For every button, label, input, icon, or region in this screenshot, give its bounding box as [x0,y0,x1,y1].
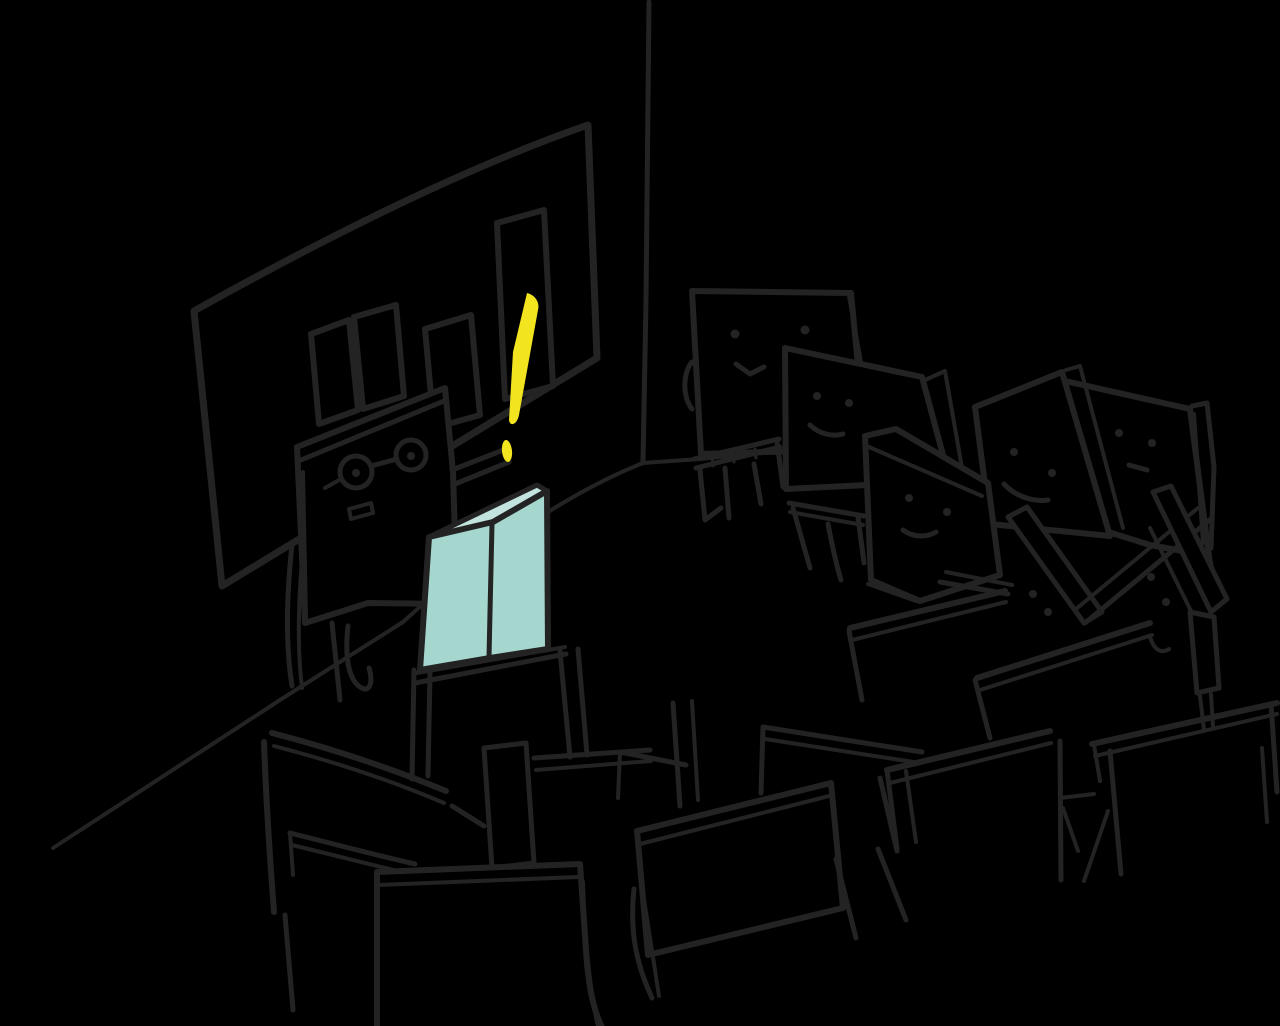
eye [905,494,913,502]
eye [1115,429,1123,437]
peeking-eye [1029,590,1037,598]
lectern-stand-leg [412,670,414,779]
eye [943,508,951,516]
chair-back [377,864,604,1026]
peeking-eye [1044,608,1052,616]
body-line [1211,694,1213,727]
chair-post [484,743,534,868]
teacher-eye-left [352,469,360,477]
chart-bar-2 [354,305,404,409]
eye [1010,448,1018,456]
rail-tick [712,457,713,466]
rail-tick [755,449,756,458]
eye [731,330,740,339]
chart-bar-1 [311,320,358,424]
eye [1147,573,1155,581]
rail-tick [733,453,734,462]
desk-corner-side [618,752,620,798]
lectern-stand-leg [428,673,430,776]
eye [1048,469,1056,477]
eye [801,326,810,335]
desk-left-edge [761,727,763,793]
desk-leg [1060,741,1061,880]
teacher-eye-right [407,452,415,460]
classroom-sketch [0,0,1280,1026]
front-center-chair [377,864,604,1026]
eye [1148,439,1156,447]
eye [1162,598,1170,606]
eye [813,392,821,400]
head-corner-fold [1190,612,1219,693]
lectern-panel-divider [489,524,492,657]
eye [845,399,853,407]
